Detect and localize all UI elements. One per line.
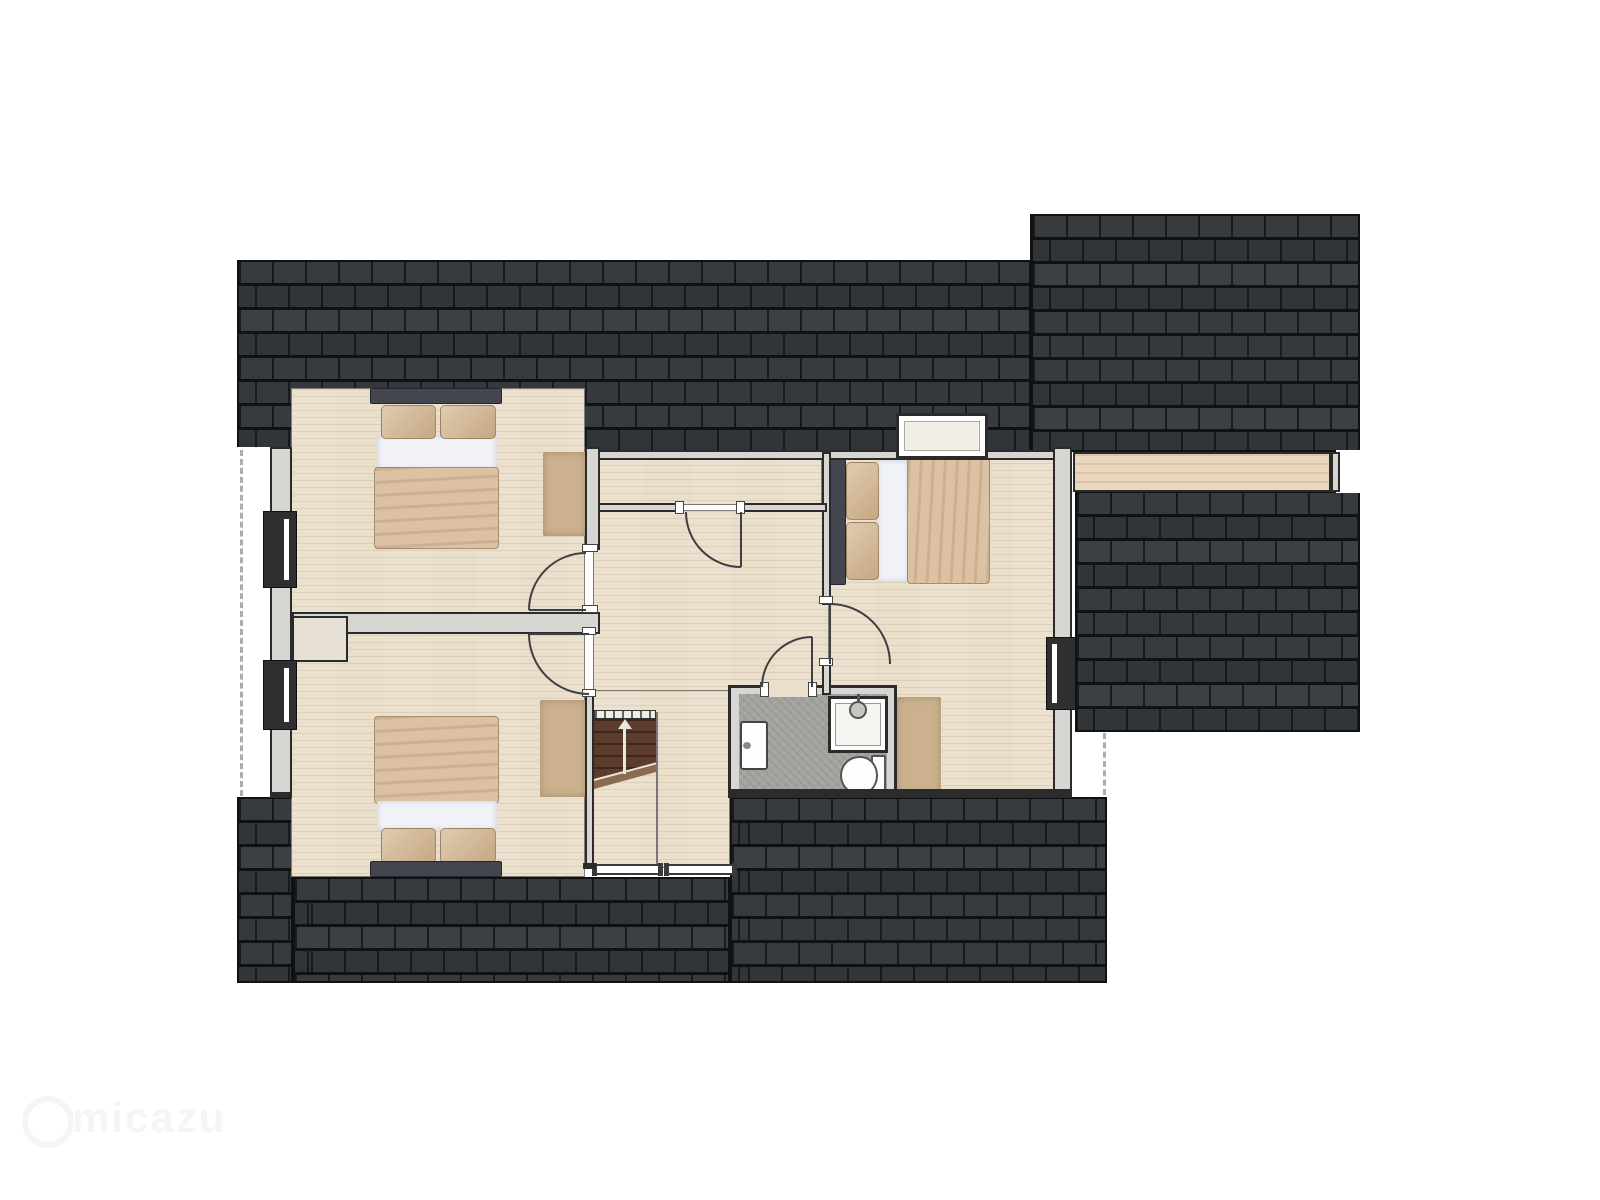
dormer-flat-roof [1073,452,1331,492]
roof-shingle-row [1033,384,1358,408]
door-jamb [582,544,598,552]
wall-hall-bedroom3-lower [822,664,831,695]
watermark-logo-icon [22,1096,74,1148]
roof-shingle-row [732,943,1105,967]
door-jamb [675,501,684,514]
bed2-duvet [374,716,499,804]
bed1-duvet [374,467,499,549]
roof-bottom-center [293,877,730,983]
roof-shingle-row [1077,637,1358,661]
bed2-headboard [370,861,502,877]
bed2-pillow-right [440,828,496,863]
roof-shingle-row [239,310,1029,334]
roof-shingle-row [1033,336,1358,360]
roof-shingle-row [239,967,291,983]
roof-shingle-row [295,903,728,927]
door-jamb [582,689,596,697]
roof-bottom-left-sliver [237,797,293,983]
roof-shingle-row [239,262,1029,286]
bed2-sheet [377,801,497,830]
roof-bottom-right [730,797,1107,983]
roof-shingle-row [295,975,728,983]
railing-post [732,863,737,876]
duct-shaft [292,616,348,662]
door-jamb [760,682,769,697]
stair-up-arrow-stem [623,728,626,774]
shower-head-icon [849,701,867,719]
watermark-text: micazu [72,1094,226,1142]
wall-hall-bedroom3-upper [822,452,831,605]
roof-shingle-row [1033,360,1358,384]
roof-shingle-row [295,951,728,975]
roof-shingle-row [239,943,291,967]
wall-corridor-right-seg [737,503,827,512]
stair-up-arrow-head [618,719,632,729]
door-jamb [819,658,833,666]
roof-shingle-row [732,847,1105,871]
railing-post [658,863,663,876]
wall-stairwell [585,695,594,868]
roof-shingle-row [732,895,1105,919]
roof-shingle-row [1033,240,1358,264]
roof-shingle-row [239,799,291,823]
stair-railing-left [595,864,661,875]
eave-margin-left [224,447,271,797]
window-left-2 [263,660,297,730]
eave-dashed-line-left [240,450,243,796]
roof-shingle-row [1077,517,1358,541]
door-jamb [582,605,598,613]
roof-shingle-row [1077,709,1358,732]
roof-right [1075,491,1360,732]
roof-shingle-row [239,871,291,895]
roof-shingle-row [239,334,1029,358]
wall-stairwell-cap [583,863,596,869]
bed1-pillow-left [381,405,436,439]
roof-shingle-row [1077,493,1358,517]
roof-shingle-row [1033,312,1358,336]
corridor-floor [598,458,822,505]
bed3-headboard [829,455,846,585]
staircase [594,710,656,792]
door-jamb [808,682,817,697]
landing-floor-upper [593,510,830,692]
roof-shingle-row [239,823,291,847]
roof-shingle-row [239,286,1029,310]
bedside-rug-room1 [543,452,586,536]
wall-room1-right [585,447,600,550]
window-right-glazing [1051,643,1058,704]
roof-shingle-row [732,799,1105,823]
roof-shingle-row [1077,661,1358,685]
roof-shingle-row [1077,541,1358,565]
railing-post [664,863,669,876]
roof-shingle-row [1033,288,1358,312]
roof-step-edge [1030,214,1033,262]
floorplan-page: { "watermark": { "text": "micazu" }, "st… [0,0,1600,1200]
roof-shingle-row [732,823,1105,847]
window-left-1 [263,511,297,588]
dormer-end-cap [1331,452,1340,492]
stair-top-edge [594,710,656,719]
bathroom-door-gap [769,682,809,697]
wall-exterior-right [1053,447,1072,797]
wall-left-end-cap [270,792,292,798]
wall-corridor-left-seg [598,503,679,512]
roof-shingle-row [295,879,728,903]
bed3-pillow-bottom [846,522,879,580]
window-left-1-glazing [283,518,290,581]
roof-shingle-row [1033,408,1358,432]
door-jamb [582,627,596,635]
bed3-duvet [907,458,990,584]
roof-top-right [1031,214,1360,452]
door-jamb [819,596,833,604]
roof-shingle-row [1077,613,1358,637]
floor-edge-bottom [728,789,1072,798]
eave-dashed-line-right [1103,733,1106,795]
roof-shingle-row [732,967,1105,983]
bed1-pillow-right [440,405,496,439]
bedside-rug-room2 [540,700,586,797]
roof-shingle-row [1077,589,1358,613]
stairwell-void-line [656,712,658,864]
roof-skylight-inner [904,421,980,451]
bed3-pillow-top [846,462,879,520]
bedside-rug-room3 [897,697,941,795]
bed3-sheet [877,460,909,582]
stair-railing-right [667,864,735,875]
roof-shingle-row [239,895,291,919]
door-jamb [736,501,745,514]
roof-shingle-row [732,871,1105,895]
bed1-headboard [370,388,502,404]
bed1-sheet [377,436,497,470]
roof-shingle-row [732,919,1105,943]
roof-shingle-row [1077,565,1358,589]
roof-shingle-row [295,927,728,951]
roof-shingle-row [1077,685,1358,709]
roof-shingle-row [1033,432,1358,452]
roof-shingle-row [239,358,1029,382]
roof-shingle-row [1033,216,1358,240]
roof-shingle-row [239,919,291,943]
roof-shingle-row [239,847,291,871]
bed2-pillow-left [381,828,436,863]
wall-exterior-left [270,447,292,798]
washbasin-faucet-icon [743,742,751,749]
shower-head-arm [857,694,860,703]
roof-shingle-row [1033,264,1358,288]
window-left-2-glazing [283,667,290,723]
